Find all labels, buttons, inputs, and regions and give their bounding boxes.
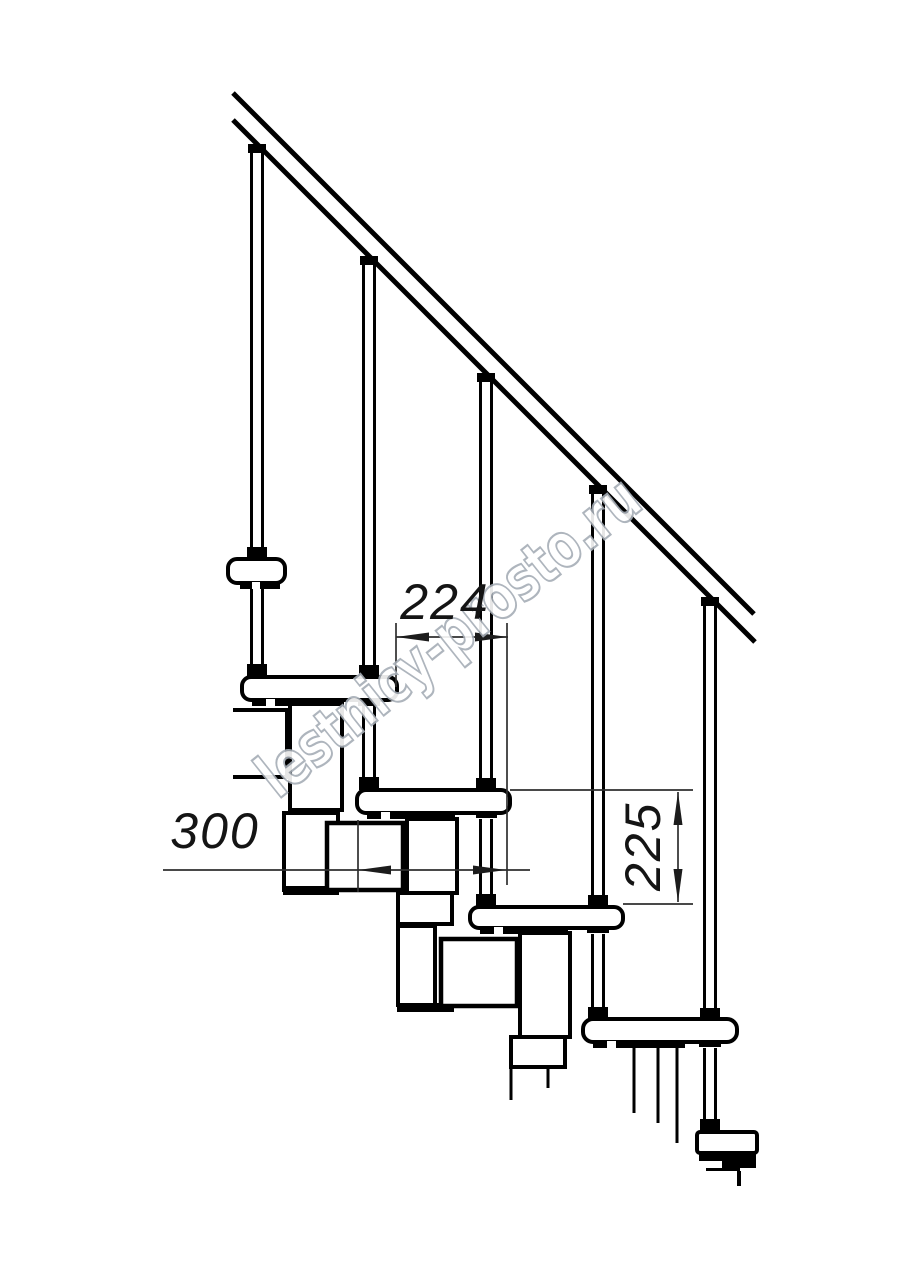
- tread-upper-cut: [228, 559, 285, 583]
- drawing-canvas: lestnicy-prosto.ru: [0, 0, 914, 1280]
- module-box: [327, 823, 403, 890]
- dimension-label-run: 224: [390, 577, 500, 627]
- module-lower: [398, 926, 435, 1005]
- staircase-technical-drawing: lestnicy-prosto.ru 224 300 225: [0, 0, 914, 1280]
- tread-2: [357, 790, 510, 813]
- dimension-label-depth: 300: [160, 806, 270, 856]
- tread-3: [470, 907, 623, 928]
- module-joint: [511, 1037, 565, 1067]
- module-box: [441, 939, 517, 1006]
- tread-4: [583, 1019, 737, 1042]
- module-stem: [520, 933, 570, 1037]
- module-joint: [398, 893, 452, 924]
- baluster-5: [700, 597, 720, 1132]
- dimension-label-riser: 225: [618, 811, 662, 891]
- baluster-1: [247, 144, 267, 677]
- module-stem: [407, 819, 457, 893]
- tread-5: [697, 1132, 757, 1153]
